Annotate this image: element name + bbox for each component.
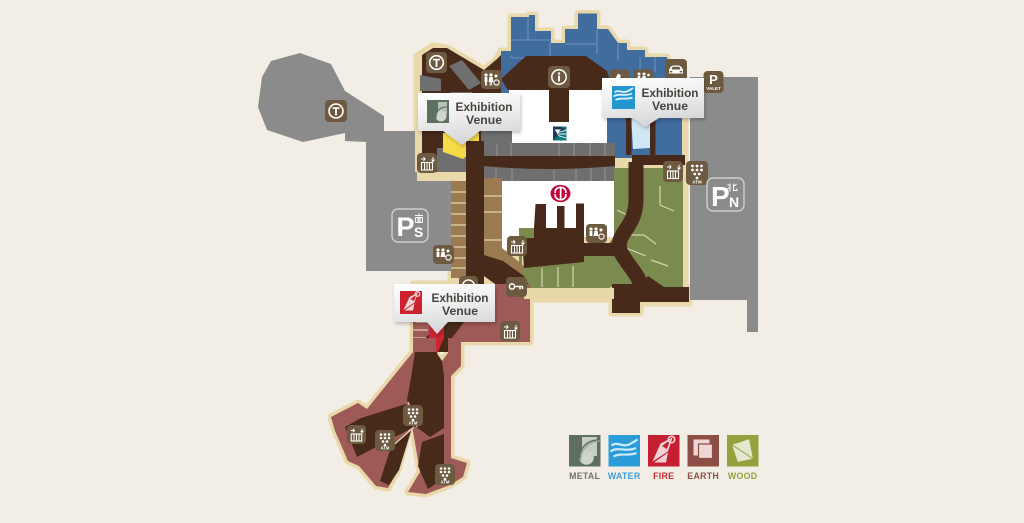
svg-text:Exhibition: Exhibition	[456, 102, 513, 114]
svg-text:ATM: ATM	[441, 480, 450, 485]
svg-text:P: P	[709, 72, 718, 87]
svg-text:Exhibition: Exhibition	[432, 293, 489, 305]
svg-text:Venue: Venue	[652, 101, 688, 113]
svg-text:WOOD: WOOD	[728, 471, 758, 481]
svg-text:WATER: WATER	[608, 471, 641, 481]
svg-text:P: P	[397, 212, 415, 242]
svg-text:VALET: VALET	[706, 86, 721, 91]
svg-text:Exhibition: Exhibition	[642, 88, 699, 100]
svg-text:Venue: Venue	[442, 306, 478, 318]
svg-text:Venue: Venue	[466, 115, 502, 127]
svg-text:S: S	[414, 224, 423, 240]
svg-text:N: N	[729, 194, 739, 210]
svg-text:P: P	[711, 181, 730, 212]
svg-text:EARTH: EARTH	[687, 471, 719, 481]
svg-text:METAL: METAL	[569, 471, 600, 481]
svg-text:ATM: ATM	[409, 421, 418, 426]
svg-text:FIRE: FIRE	[653, 471, 674, 481]
svg-text:ATM: ATM	[692, 180, 702, 185]
svg-text:ATM: ATM	[381, 446, 390, 451]
